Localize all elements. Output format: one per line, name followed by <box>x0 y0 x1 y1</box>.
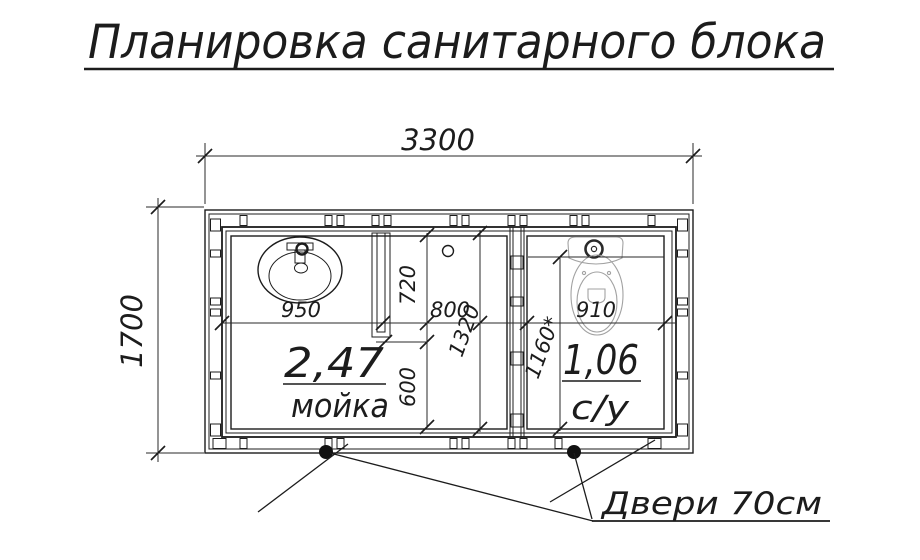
sink-overflow <box>295 263 308 273</box>
wall-studs-right <box>678 219 688 436</box>
wall-stud <box>325 216 332 226</box>
wall-stud <box>520 439 527 449</box>
wall-stud <box>450 216 457 226</box>
wall-stud <box>211 250 221 257</box>
wall-stud <box>462 439 469 449</box>
title-block: Планировка санитарного блока <box>84 15 834 70</box>
washroom-name: мойка <box>291 386 389 425</box>
wall-stud <box>678 219 688 231</box>
dim-label-toilet-zone: 910 <box>576 298 616 322</box>
toilet-room-area: 1,06 <box>563 336 639 384</box>
wall-stud <box>678 372 688 379</box>
stub-partition <box>372 233 390 337</box>
seat-hinge <box>607 271 610 274</box>
wall-stud <box>211 309 221 316</box>
wall-stud <box>240 439 247 449</box>
leader-line <box>330 453 593 521</box>
floor-plan-svg: Планировка санитарного блока 3300 1700 <box>0 0 920 560</box>
wall-stud <box>678 298 688 305</box>
wall-stud <box>211 219 221 231</box>
wall-stud <box>211 424 221 436</box>
partition-wall <box>510 227 524 437</box>
wall-stud <box>384 216 391 226</box>
wall-stud <box>508 216 515 226</box>
wall-stud <box>508 439 515 449</box>
wall-stud <box>582 216 589 226</box>
wall-stud <box>211 372 221 379</box>
dim-overall-width: 3300 <box>196 123 702 204</box>
wall-stud <box>648 216 655 226</box>
wall-stud <box>372 216 379 226</box>
sink-bowl-inner <box>269 252 331 300</box>
wall-studs-left <box>211 219 221 436</box>
page-title: Планировка санитарного блока <box>88 15 826 70</box>
stub-inner <box>377 233 385 332</box>
sink-bowl-outer <box>258 237 342 303</box>
wall-stud <box>462 216 469 226</box>
dim-label-overall-width: 3300 <box>401 123 475 157</box>
faucet-knob <box>297 244 308 255</box>
wall-stud <box>520 216 527 226</box>
dim-label-front-depth: 720 <box>396 265 420 305</box>
room-label-washroom: 2,47 мойка <box>283 339 389 425</box>
seat-hinge <box>582 271 585 274</box>
wall-stud <box>337 439 344 449</box>
door-note: Двери 70см <box>600 486 822 522</box>
wall-stud <box>570 216 577 226</box>
dim-overall-depth: 1700 <box>115 198 204 462</box>
wall-stud <box>211 298 221 305</box>
wall-stud <box>337 216 344 226</box>
washroom-area: 2,47 <box>284 339 384 387</box>
floor-drain-icon <box>443 246 454 257</box>
drawing-sheet: Планировка санитарного блока 3300 1700 <box>0 0 920 560</box>
dim-label-rear-depth: 600 <box>396 367 420 407</box>
sink-icon <box>258 237 342 303</box>
wall-stud <box>678 250 688 257</box>
dim-label-overall-depth: 1700 <box>115 294 149 368</box>
door-callout: Двери 70см <box>258 440 830 522</box>
room-label-toilet: 1,06 с/у <box>562 336 641 427</box>
stub-outer <box>372 233 390 337</box>
wall-stud <box>678 424 688 436</box>
dim-label-sink-zone: 950 <box>281 298 321 322</box>
wall-stud <box>240 216 247 226</box>
wall-stud <box>213 439 226 449</box>
wall-studs-top <box>240 216 655 226</box>
door-marker <box>567 445 581 459</box>
wall-stud <box>555 439 562 449</box>
wall-stud <box>678 309 688 316</box>
flush-button-center <box>591 246 596 251</box>
wall-studs-bottom <box>213 439 661 449</box>
toilet-room-name: с/у <box>571 388 630 427</box>
wall-stud <box>450 439 457 449</box>
